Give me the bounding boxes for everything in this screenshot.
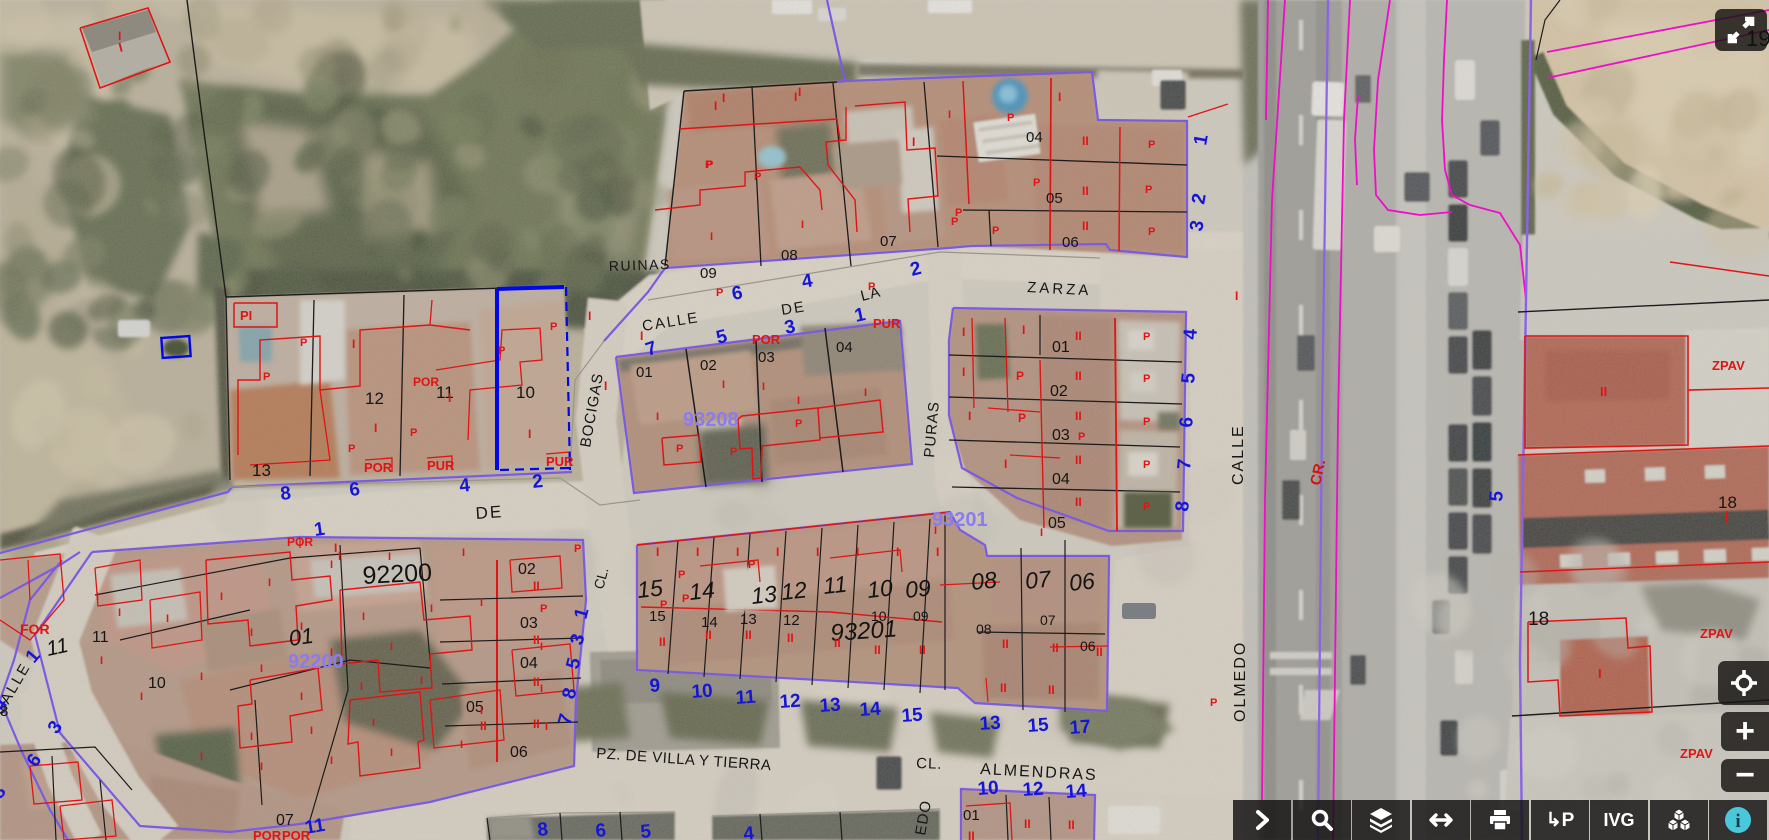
svg-text:|: |	[1725, 509, 1728, 523]
svg-text:I: I	[776, 545, 779, 559]
svg-text:I: I	[1022, 323, 1025, 337]
svg-text:I: I	[540, 641, 543, 653]
svg-text:I: I	[374, 421, 377, 435]
svg-text:I: I	[260, 761, 263, 773]
svg-text:I: I	[480, 705, 483, 717]
svg-text:02: 02	[1050, 383, 1068, 400]
svg-text:PUR: PUR	[873, 316, 901, 331]
svg-text:P: P	[730, 446, 737, 458]
svg-text:92200: 92200	[362, 558, 433, 590]
svg-text:II: II	[834, 636, 841, 650]
svg-text:ZPAV: ZPAV	[1680, 746, 1713, 761]
svg-text:II: II	[1075, 453, 1082, 467]
svg-text:II: II	[919, 643, 926, 657]
svg-text:11: 11	[735, 687, 757, 709]
svg-text:II: II	[1082, 219, 1089, 233]
svg-text:P: P	[992, 225, 999, 237]
svg-text:P: P	[1148, 139, 1155, 151]
svg-text:03: 03	[758, 349, 775, 366]
svg-text:P: P	[795, 418, 802, 430]
svg-text:P: P	[1148, 226, 1155, 238]
svg-text:9: 9	[649, 675, 661, 697]
svg-text:I: I	[696, 545, 699, 559]
svg-text:I: I	[260, 663, 263, 675]
svg-text:II: II	[533, 633, 540, 647]
svg-text:P: P	[348, 443, 355, 455]
svg-text:2: 2	[531, 471, 544, 493]
svg-text:I: I	[912, 135, 915, 149]
svg-text:II: II	[1048, 683, 1055, 697]
svg-text:II: II	[1096, 645, 1103, 659]
svg-text:I: I	[962, 365, 965, 379]
svg-text:POR: POR	[752, 332, 781, 347]
svg-text:I: I	[1004, 457, 1007, 471]
svg-text:I: I	[1235, 289, 1238, 303]
svg-text:15: 15	[901, 705, 924, 727]
svg-text:8: 8	[537, 819, 549, 840]
svg-text:P: P	[1145, 184, 1152, 196]
svg-text:I: I	[797, 395, 800, 407]
svg-text:18: 18	[1528, 609, 1549, 630]
svg-text:I: I	[936, 545, 939, 559]
svg-text:I: I	[656, 411, 659, 423]
svg-text:P: P	[1033, 177, 1040, 189]
svg-text:I: I	[330, 755, 333, 767]
svg-text:I: I	[762, 381, 765, 393]
svg-text:I: I	[968, 409, 971, 423]
svg-text:I: I	[250, 627, 253, 639]
svg-text:8: 8	[1172, 500, 1194, 512]
svg-text:I: I	[856, 545, 859, 559]
svg-text:01: 01	[1052, 339, 1070, 356]
svg-text:04: 04	[836, 339, 853, 356]
svg-text:I: I	[200, 751, 203, 763]
svg-text:10: 10	[148, 675, 166, 692]
svg-text:II: II	[874, 643, 881, 657]
svg-text:I: I	[166, 613, 169, 625]
svg-text:09: 09	[904, 574, 932, 603]
svg-text:I: I	[200, 671, 203, 683]
svg-text:P: P	[1143, 416, 1150, 428]
svg-text:P: P	[1143, 373, 1150, 385]
svg-text:I: I	[118, 607, 121, 619]
svg-text:05: 05	[1048, 515, 1066, 532]
svg-text:93201: 93201	[932, 509, 988, 531]
svg-text:04: 04	[1026, 129, 1043, 146]
svg-text:I: I	[362, 611, 365, 623]
svg-text:II: II	[1075, 495, 1082, 509]
svg-text:13: 13	[819, 695, 842, 717]
svg-text:I: I	[420, 675, 423, 687]
svg-text:II: II	[533, 675, 540, 689]
svg-text:I: I	[948, 109, 951, 121]
svg-text:I: I	[462, 547, 465, 559]
svg-text:10: 10	[691, 681, 714, 703]
svg-text:I: I	[736, 545, 739, 559]
svg-text:I: I	[710, 231, 713, 243]
svg-text:I: I	[300, 691, 303, 703]
svg-text:P: P	[300, 337, 307, 349]
svg-text:03: 03	[1052, 427, 1070, 444]
svg-text:P: P	[263, 371, 270, 383]
svg-text:P: P	[410, 427, 417, 439]
svg-text:I: I	[896, 545, 899, 559]
svg-text:I: I	[798, 85, 801, 99]
svg-text:OLMEDO: OLMEDO	[1232, 641, 1249, 722]
svg-text:ZPAV: ZPAV	[1700, 626, 1733, 641]
svg-text:I: I	[962, 325, 965, 339]
svg-text:07: 07	[1040, 612, 1056, 628]
svg-text:I: I	[480, 597, 483, 609]
svg-text:09: 09	[913, 608, 929, 624]
svg-text:II: II	[1082, 134, 1089, 148]
svg-text:CALLE: CALLE	[1230, 424, 1247, 485]
svg-text:II: II	[659, 635, 666, 649]
svg-text:92200: 92200	[288, 651, 344, 673]
svg-text:12: 12	[365, 389, 384, 408]
svg-text:06: 06	[1080, 638, 1096, 654]
svg-text:12: 12	[1022, 779, 1045, 801]
svg-text:P: P	[706, 159, 713, 171]
svg-text:I: I	[334, 541, 337, 555]
svg-text:06: 06	[1062, 234, 1079, 251]
svg-text:ZARZA: ZARZA	[1027, 279, 1092, 299]
svg-text:P: P	[676, 443, 683, 455]
svg-text:POR: POR	[253, 828, 282, 840]
svg-text:I: I	[372, 717, 375, 729]
svg-text:I: I	[794, 90, 797, 104]
svg-text:I: I	[220, 591, 223, 603]
svg-text:I: I	[448, 391, 451, 405]
svg-text:P: P	[1007, 112, 1014, 124]
svg-text:08: 08	[970, 566, 998, 595]
svg-text:I: I	[140, 691, 143, 703]
svg-text:I: I	[430, 603, 433, 615]
svg-text:II: II	[745, 628, 752, 642]
svg-text:I: I	[722, 379, 725, 391]
svg-text:03: 03	[520, 615, 538, 632]
svg-text:05: 05	[1046, 190, 1063, 207]
svg-text:13: 13	[750, 580, 778, 609]
svg-text:P: P	[955, 207, 962, 219]
svg-text:P: P	[678, 569, 685, 581]
svg-text:I: I	[1058, 90, 1061, 104]
svg-text:P: P	[574, 543, 581, 555]
svg-text:06: 06	[1068, 567, 1096, 596]
svg-text:I: I	[388, 551, 391, 563]
svg-text:I: I	[100, 655, 103, 667]
svg-text:POR: POR	[413, 375, 439, 389]
svg-text:12: 12	[779, 691, 802, 713]
svg-text:7: 7	[1174, 458, 1196, 470]
svg-text:II: II	[1002, 637, 1009, 651]
svg-text:I: I	[300, 621, 303, 633]
svg-text:I: I	[714, 99, 717, 113]
svg-text:II: II	[1024, 817, 1031, 831]
svg-text:8: 8	[279, 483, 292, 505]
svg-text:10: 10	[516, 383, 535, 402]
svg-text:P: P	[1143, 459, 1150, 471]
svg-text:P: P	[1210, 697, 1217, 709]
svg-text:02: 02	[518, 561, 536, 578]
svg-text:08: 08	[781, 247, 798, 264]
svg-text:08: 08	[976, 621, 992, 637]
svg-text:II: II	[787, 631, 794, 645]
svg-text:DE: DE	[475, 502, 504, 523]
svg-text:01: 01	[963, 807, 980, 824]
svg-text:I: I	[268, 577, 271, 589]
svg-text:P: P	[1016, 369, 1024, 383]
svg-text:II: II	[968, 829, 975, 840]
svg-text:11: 11	[822, 571, 848, 599]
svg-text:I: I	[1040, 527, 1043, 539]
svg-text:07: 07	[1024, 565, 1053, 594]
svg-text:RUINAS: RUINAS	[609, 256, 671, 274]
svg-text:I: I	[934, 525, 937, 537]
svg-text:6: 6	[1176, 416, 1198, 428]
svg-text:P: P	[498, 345, 505, 357]
svg-text:P: P	[1078, 431, 1085, 443]
svg-text:PUR: PUR	[427, 458, 455, 473]
svg-text:P: P	[1143, 331, 1150, 343]
svg-text:II: II	[1000, 681, 1007, 695]
svg-text:14: 14	[859, 699, 882, 721]
svg-text:P: P	[550, 321, 557, 333]
svg-text:06: 06	[510, 744, 528, 761]
svg-text:10: 10	[977, 778, 1000, 800]
svg-text:I: I	[760, 449, 763, 461]
svg-text:II: II	[480, 719, 487, 733]
svg-text:I: I	[656, 545, 659, 559]
svg-text:POR: POR	[282, 828, 311, 840]
svg-text:I: I	[640, 329, 643, 343]
svg-text:I: I	[390, 747, 393, 759]
svg-text:I: I	[390, 641, 393, 653]
svg-text:P: P	[748, 559, 755, 571]
svg-text:II: II	[1075, 409, 1082, 423]
svg-text:I: I	[352, 337, 355, 351]
svg-text:I: I	[816, 545, 819, 559]
svg-text:I: I	[545, 721, 548, 733]
svg-text:I: I	[588, 309, 591, 323]
svg-text:I: I	[330, 647, 333, 659]
svg-text:01: 01	[636, 364, 653, 381]
svg-text:I: I	[430, 711, 433, 723]
svg-text:15: 15	[1027, 715, 1050, 737]
svg-text:13: 13	[252, 461, 271, 480]
svg-text:I: I	[460, 739, 463, 751]
svg-text:13: 13	[740, 611, 757, 628]
svg-text:P: P	[754, 171, 761, 183]
svg-text:17: 17	[1069, 717, 1092, 739]
svg-text:14: 14	[688, 576, 716, 605]
svg-text:PI: PI	[240, 308, 252, 323]
svg-text:P: P	[660, 599, 667, 611]
svg-text:12: 12	[783, 612, 800, 629]
svg-text:I: I	[250, 731, 253, 743]
svg-text:I: I	[1598, 666, 1602, 681]
svg-text:CL.: CL.	[916, 755, 943, 773]
svg-text:I: I	[338, 549, 341, 563]
svg-text:II: II	[533, 579, 540, 593]
svg-text:11: 11	[92, 629, 109, 646]
svg-text:II: II	[1075, 329, 1082, 343]
svg-text:II: II	[1082, 184, 1089, 198]
svg-text:07: 07	[880, 233, 897, 250]
svg-text:13: 13	[979, 713, 1002, 735]
svg-text:10: 10	[866, 574, 894, 603]
svg-text:I: I	[310, 725, 313, 737]
svg-text:I: I	[528, 427, 531, 441]
svg-text:FOR: FOR	[20, 621, 50, 637]
svg-text:6: 6	[348, 479, 361, 501]
svg-text:P: P	[540, 603, 547, 615]
svg-text:6: 6	[595, 820, 607, 840]
svg-text:04: 04	[520, 655, 538, 672]
svg-text:I: I	[96, 591, 99, 603]
svg-text:I: I	[330, 559, 333, 571]
svg-text:I: I	[360, 681, 363, 693]
svg-text:II: II	[1052, 641, 1059, 655]
svg-text:P: P	[1143, 501, 1150, 513]
svg-text:04: 04	[1052, 471, 1070, 488]
svg-text:14: 14	[1065, 781, 1088, 803]
svg-text:POR: POR	[364, 460, 393, 475]
svg-text:PUR: PUR	[546, 454, 574, 469]
svg-text:II: II	[705, 628, 712, 642]
svg-text:i: i	[1735, 811, 1740, 832]
svg-text:P: P	[1018, 411, 1026, 425]
svg-text:07: 07	[276, 812, 294, 829]
svg-text:I: I	[801, 219, 804, 231]
svg-text:93208: 93208	[683, 409, 739, 431]
svg-text:I: I	[722, 91, 725, 105]
svg-text:II: II	[533, 717, 540, 731]
svg-text:P: P	[868, 281, 875, 293]
svg-text:POR: POR	[287, 535, 313, 549]
svg-text:II: II	[1075, 369, 1082, 383]
svg-text:P: P	[682, 593, 689, 605]
svg-text:ZPAV: ZPAV	[1712, 358, 1745, 373]
svg-text:P: P	[716, 287, 723, 299]
svg-text:02: 02	[700, 357, 717, 374]
svg-text:12: 12	[780, 576, 808, 605]
svg-text:09: 09	[700, 265, 717, 282]
svg-text:I: I	[604, 379, 607, 393]
svg-text:I: I	[864, 387, 867, 399]
svg-text:I: I	[540, 683, 543, 695]
svg-text:II: II	[1068, 818, 1075, 832]
svg-text:II: II	[1600, 384, 1607, 399]
